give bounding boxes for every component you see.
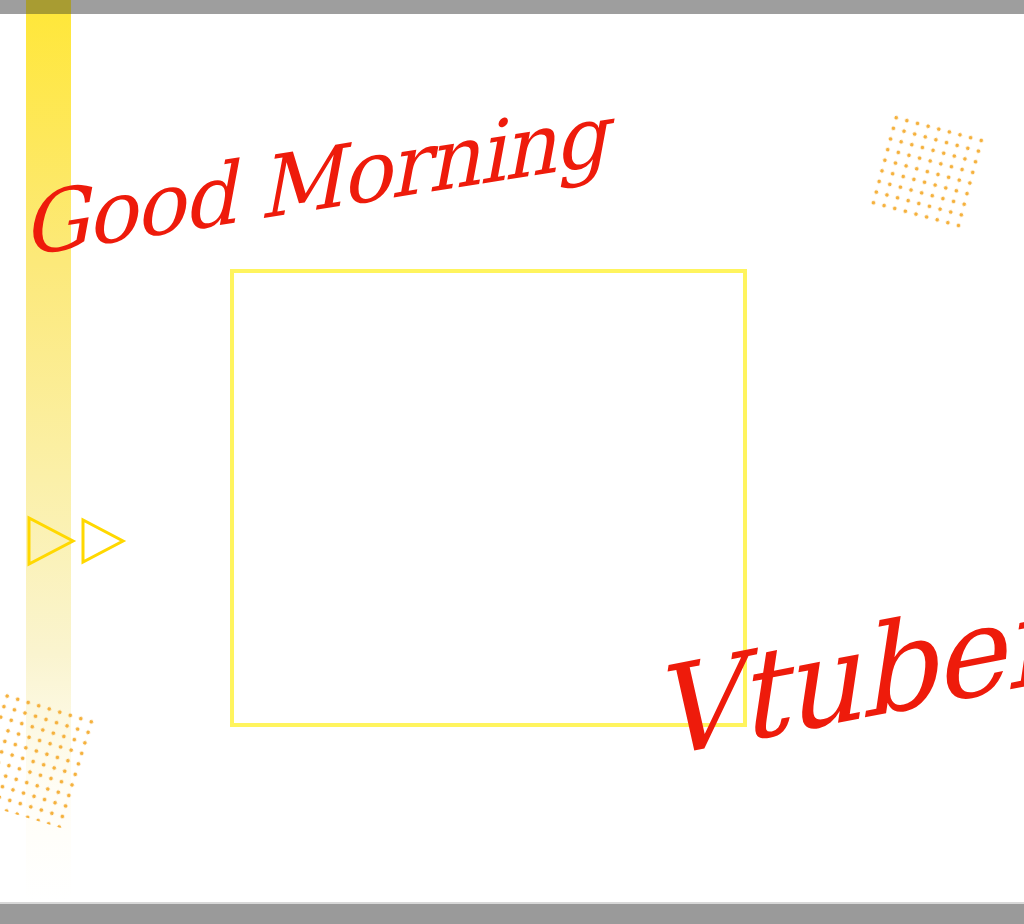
play-triangles-icon [27,515,127,567]
dot-grid-icon-top-right [865,109,990,234]
top-letterbox-bar [0,0,1024,14]
stripe-topbar-overlap [26,0,71,14]
dot-grid-icon-bottom-left [0,683,97,828]
bottom-letterbox-bar [0,902,1024,924]
overlay-canvas: Good Morning Vtuber [0,0,1024,924]
greeting-text: Good Morning [20,92,607,269]
